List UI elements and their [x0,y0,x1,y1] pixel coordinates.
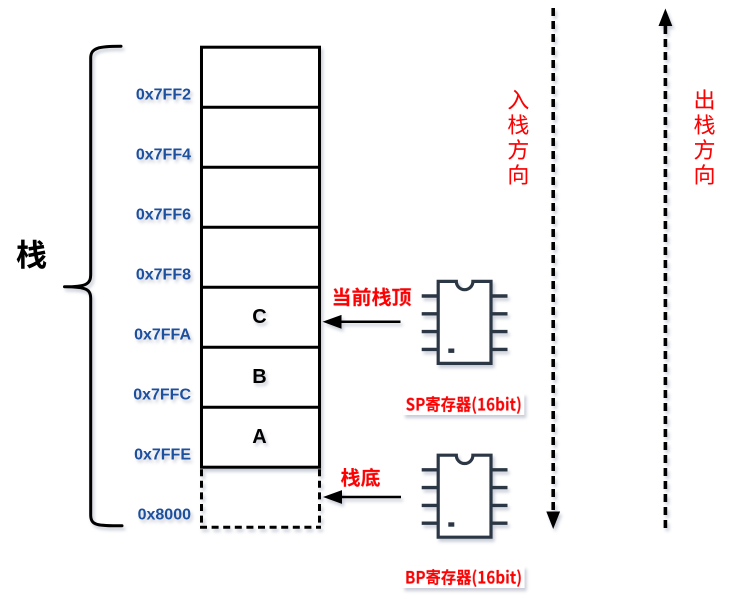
svg-text:0x7FFE: 0x7FFE [134,447,191,464]
svg-text:B: B [252,366,266,388]
svg-text:0x7FF2: 0x7FF2 [136,87,191,104]
svg-text:A: A [252,426,266,448]
svg-text:0x7FFA: 0x7FFA [134,327,191,344]
svg-text:0x7FFC: 0x7FFC [133,387,191,404]
svg-text:0x7FF8: 0x7FF8 [136,267,191,284]
svg-text:0x8000: 0x8000 [138,507,191,524]
svg-text:0x7FF6: 0x7FF6 [136,207,191,224]
svg-text:C: C [252,306,266,328]
svg-text:0x7FF4: 0x7FF4 [136,147,191,164]
